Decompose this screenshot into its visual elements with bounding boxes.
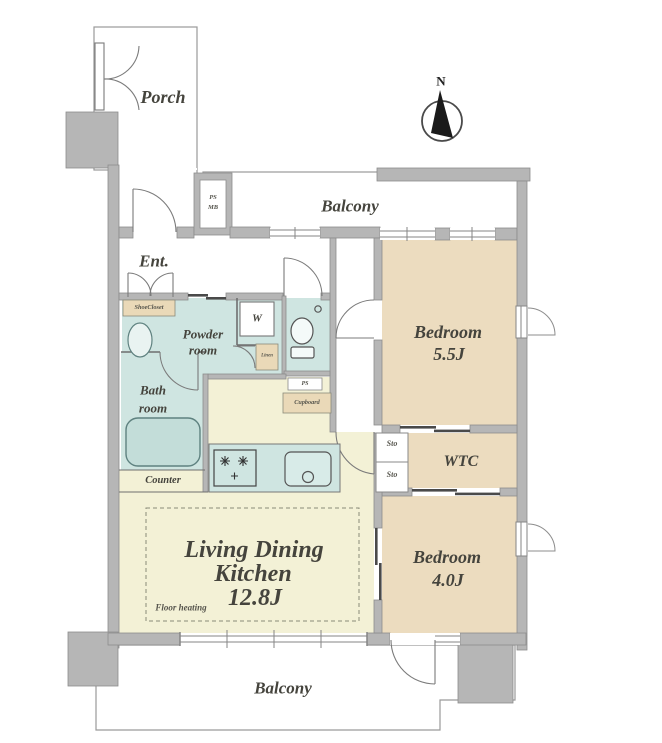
counter-label: Counter <box>145 476 181 487</box>
sto-upper-label: Sto <box>387 440 398 448</box>
bath-room-label-2: room <box>139 402 167 415</box>
column-bottom-right <box>458 638 513 703</box>
entrance-label: Ent. <box>139 253 169 270</box>
ps-label: PS <box>301 381 308 387</box>
ldk-floor-b <box>336 432 374 633</box>
washer-label: W <box>252 314 262 325</box>
wtc-label: WTC <box>444 454 479 470</box>
left-wall <box>108 165 119 648</box>
powder-room-label-1: Powder <box>183 328 223 341</box>
linen-label: Linen <box>261 355 273 360</box>
stove-icon <box>214 450 256 486</box>
bedroom2-size-label: 4.0J <box>432 571 464 589</box>
bedroom1-size-label: 5.5J <box>433 345 465 363</box>
cupboard-label: Cupboard <box>294 400 319 406</box>
bath-room-label-1: Bath <box>140 384 166 397</box>
compass-icon <box>422 90 462 141</box>
bath-kitchen-wall <box>203 374 208 492</box>
ps-label-niche: PS <box>209 195 217 202</box>
bedroom1-label: Bedroom <box>414 323 482 341</box>
ldk-label-1: Living Dining <box>184 538 323 562</box>
balcony-bottom-label: Balcony <box>254 680 312 697</box>
floor-heating-label: Floor heating <box>155 604 206 613</box>
porch-label: Porch <box>141 88 186 106</box>
ldk-label-2: Kitchen <box>214 562 291 586</box>
bedroom2-label: Bedroom <box>413 548 481 566</box>
mb-label-niche: MB <box>208 205 218 212</box>
compass-north-label: N <box>436 75 445 88</box>
sto-lower-label: Sto <box>387 471 398 479</box>
ldk-size-label: 12.8J <box>228 586 282 610</box>
powder-room-label-2: room <box>189 344 217 357</box>
column-top-left <box>66 112 118 168</box>
floor-plan: Porch Balcony PS MB Ent. ShoeCloset Powd… <box>0 0 662 743</box>
bathtub-icon <box>126 418 200 466</box>
floor-plan-drawing <box>0 0 662 743</box>
shoe-closet-label: ShoeCloset <box>134 305 163 311</box>
top-right-wall <box>377 168 530 181</box>
basin-icon <box>128 323 152 357</box>
sink-icon <box>285 452 331 486</box>
balcony-top-label: Balcony <box>321 198 379 215</box>
